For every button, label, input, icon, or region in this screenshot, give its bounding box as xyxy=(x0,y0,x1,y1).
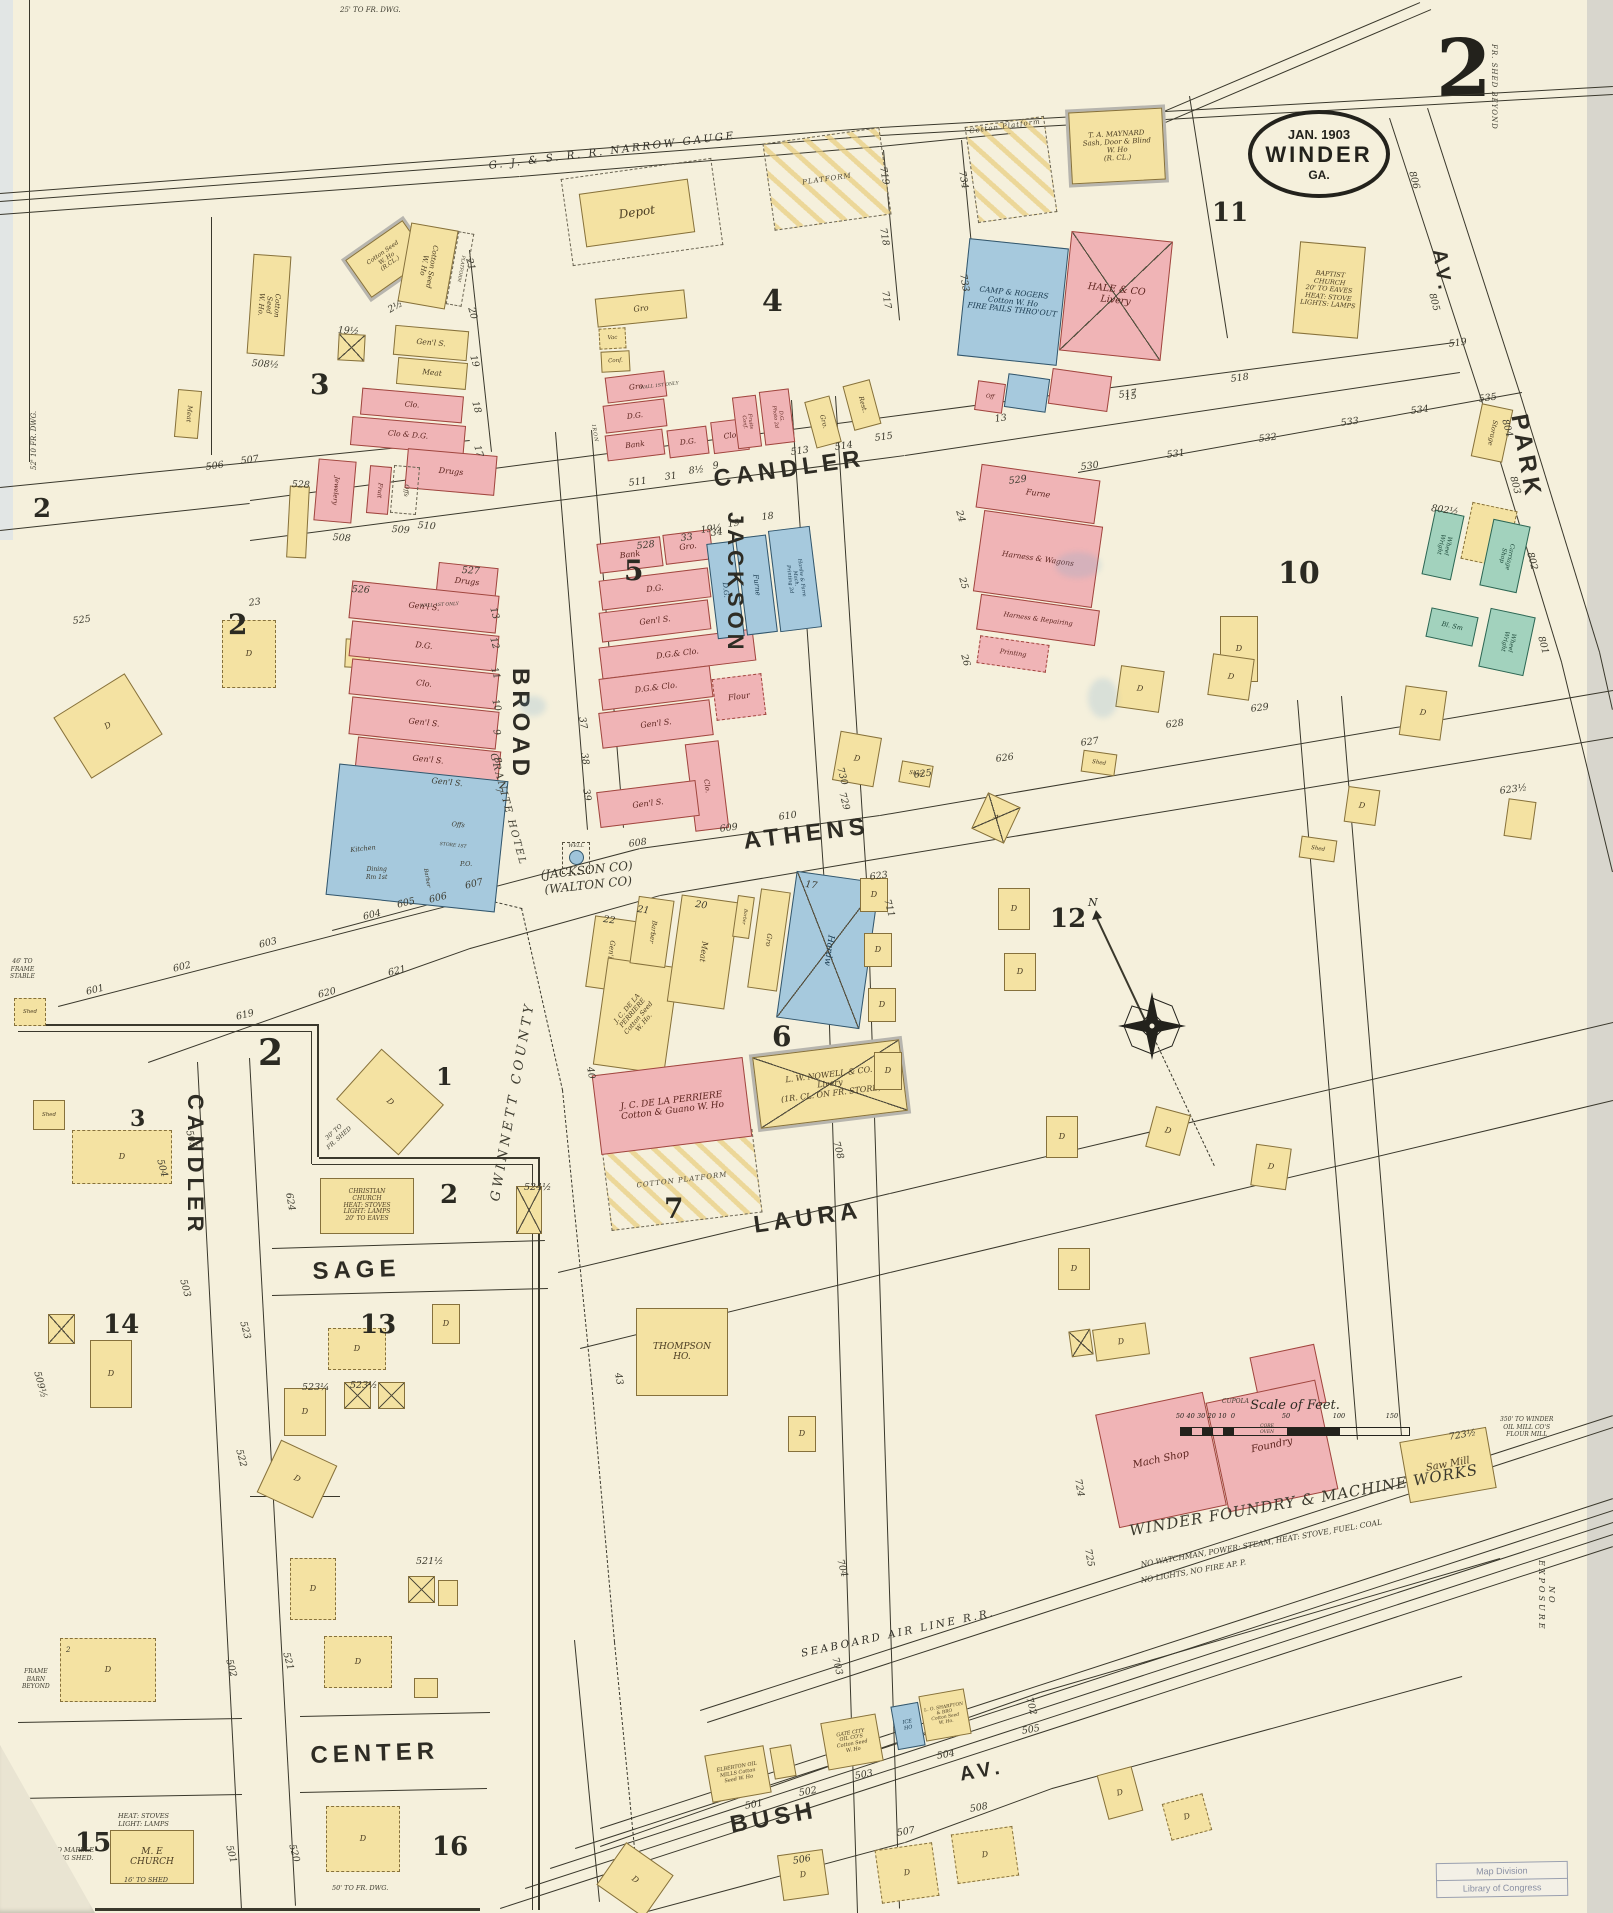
block-number-16: 16 xyxy=(432,1832,468,1862)
street-number: 40 xyxy=(584,1066,597,1080)
block-number-13: 13 xyxy=(360,1310,396,1340)
street-number: 623½ xyxy=(1499,782,1528,797)
building-label: D xyxy=(103,720,113,731)
street-number: 518 xyxy=(1230,371,1249,384)
map-note-frame: FRAME BARN BEYOND xyxy=(22,1668,50,1691)
building-label: GATE CITY OIL CO'S Cotton Seed W. Ho xyxy=(835,1728,870,1756)
scale-tick: 150 xyxy=(1386,1412,1398,1420)
building-label: D xyxy=(1183,1812,1192,1823)
building-label: Gro xyxy=(633,303,649,314)
building-label: L. O. SHARPTON & BRO Cotton Seed W. Ho. xyxy=(922,1701,969,1729)
building-label: Shed xyxy=(23,1009,37,1015)
street-number: 31 xyxy=(664,470,678,483)
building-d: D xyxy=(1092,1322,1150,1361)
well-marker: WELL xyxy=(562,842,590,874)
building-label: L. W. NOWELL & CO. Livery (1R. CL. ON FR… xyxy=(778,1064,882,1104)
building-label: D xyxy=(105,1665,111,1674)
building-label: D xyxy=(1071,1264,1077,1273)
street-number: 523 xyxy=(237,1320,252,1340)
building-label: Meat xyxy=(422,368,442,378)
building-label: Mach Shop xyxy=(1132,1448,1190,1471)
building-label: D.G. xyxy=(626,411,643,422)
street-number: 8½ xyxy=(688,464,705,477)
building-label: D xyxy=(360,1834,366,1843)
building-d: D xyxy=(1344,786,1381,826)
building-wheel: Wheel Wright xyxy=(1421,510,1464,581)
building-label: Gen'l S. xyxy=(640,718,672,731)
map-line xyxy=(317,1024,319,1157)
building-unlabeled xyxy=(438,1580,458,1606)
building-fruits: Fruits Conf. xyxy=(732,395,762,450)
platform-cotton-platform: Cotton Platform xyxy=(965,116,1058,223)
street-number: 503 xyxy=(854,1768,874,1782)
building-conf: Conf. xyxy=(600,350,630,372)
building-label: Offs xyxy=(401,484,409,497)
building-unlabeled xyxy=(769,1744,796,1779)
scale-of-feet: Scale of Feet. 5040302010050100150 xyxy=(1180,1398,1410,1436)
building-label: Depot xyxy=(618,204,656,223)
building-label: D xyxy=(1136,684,1144,694)
street-number: 619 xyxy=(235,1008,255,1023)
building-label: Clo xyxy=(723,431,737,441)
map-note-46-to: 46' TO FRAME STABLE xyxy=(10,958,35,981)
street-number: 725 xyxy=(1082,1548,1096,1568)
street-number: 13 xyxy=(487,606,501,621)
building-label: Gen'l S. xyxy=(632,798,664,811)
building-label: D xyxy=(1236,644,1242,653)
building-label: ELBERTON OIL MILLS Cotton Seed W. Ho xyxy=(716,1762,759,1786)
building-label: D.G. Photo 2d xyxy=(770,405,784,429)
stamp-line-2: Library of Congress xyxy=(1437,1878,1567,1897)
scale-segment xyxy=(1192,1428,1203,1435)
street-number: 15 xyxy=(1124,390,1138,403)
street-number: 718 xyxy=(877,227,891,247)
building-label: J. C. DE LA PERRIERE Cotton & Guano W. H… xyxy=(619,1089,724,1122)
map-line xyxy=(58,905,450,1007)
building-unlabeled xyxy=(48,1314,75,1344)
map-note-no-exposure: NO EXPOSURE xyxy=(1536,1560,1556,1632)
building-label: D.G.& Clo. xyxy=(656,647,700,661)
street-number: 724 xyxy=(1072,1478,1086,1498)
street-label-center: CENTER xyxy=(310,1738,440,1770)
map-line xyxy=(0,135,880,202)
building-label: Gro xyxy=(764,933,774,947)
scale-bar xyxy=(1180,1427,1410,1436)
building-gen-l-s: Gen'l S. xyxy=(393,325,469,361)
building-vac: Vac xyxy=(598,327,626,349)
compass-rose: N xyxy=(1066,888,1236,1192)
street-number: 604 xyxy=(362,908,382,923)
building-label: D xyxy=(1059,1132,1065,1141)
building-label: D xyxy=(310,1584,316,1593)
building-label: D xyxy=(853,754,861,764)
building-label: Harness & Repairing xyxy=(1003,611,1073,628)
scan-edge xyxy=(1587,0,1613,1913)
street-number: 24 xyxy=(953,509,967,524)
building-d: D xyxy=(284,1388,326,1436)
library-stamp: Map Division Library of Congress xyxy=(1436,1861,1569,1898)
street-number: 522 xyxy=(233,1448,248,1468)
building-label: Meat xyxy=(697,941,709,963)
building-label: Gen'l S. xyxy=(412,754,444,766)
street-number: 703 xyxy=(829,1656,844,1676)
block-number-6: 6 xyxy=(772,1020,791,1053)
map-note-25-to-fr-dwg: 25' TO FR. DWG. xyxy=(340,6,401,15)
map-line xyxy=(555,432,588,830)
block-number-4: 4 xyxy=(762,284,783,319)
street-label-jackson: JACKSON xyxy=(722,512,748,655)
street-number: 511 xyxy=(628,475,647,488)
building-label: Fruits Conf. xyxy=(740,414,753,431)
street-number: 507 xyxy=(240,453,259,466)
street-number: 21 xyxy=(636,904,650,917)
building-label: Bl. Sm xyxy=(1441,621,1464,633)
building-d: D xyxy=(336,1049,444,1156)
building-label: D xyxy=(1267,1162,1275,1172)
building-label: D xyxy=(875,945,881,954)
street-number: 621 xyxy=(387,964,407,979)
building-label: D xyxy=(981,1850,989,1860)
street-label-athens: ATHENS xyxy=(742,813,871,856)
compass-star-icon: N xyxy=(1066,888,1236,1188)
building-d: D xyxy=(951,1826,1019,1884)
street-number: 9 xyxy=(490,728,502,737)
building-unlabeled xyxy=(1068,1329,1093,1358)
title-state: GA. xyxy=(1308,168,1329,182)
street-number: 37 xyxy=(576,716,589,730)
block-number-2: 2 xyxy=(258,1032,283,1074)
map-line xyxy=(538,1157,540,1910)
map-line xyxy=(0,127,880,194)
street-number: 603 xyxy=(258,936,278,951)
street-number: 711 xyxy=(881,898,896,918)
map-line xyxy=(525,1534,1613,1889)
building-d: D xyxy=(868,988,896,1022)
building-flour: Flour xyxy=(712,673,767,721)
building-unlabeled xyxy=(1503,798,1536,840)
building-label: D xyxy=(443,1319,449,1328)
street-label-av: AV. xyxy=(1427,248,1456,296)
building-gate-city: GATE CITY OIL CO'S Cotton Seed W. Ho xyxy=(820,1714,883,1771)
aging-smudge xyxy=(1055,552,1101,578)
street-number: 523¼ xyxy=(302,1382,329,1393)
platform-label: PLATFORM xyxy=(802,172,852,187)
building-label: D xyxy=(108,1369,114,1378)
street-number: 507 xyxy=(896,1825,916,1839)
building-label: THOMPSON HO. xyxy=(653,1342,711,1363)
map-note-30-to: 30' TO FR. SHED xyxy=(320,1119,353,1151)
compass-north-letter: N xyxy=(1087,896,1098,909)
map-note-heat-stoves: HEAT: STOVES LIGHT: LAMPS xyxy=(118,1812,169,1828)
street-number: 521½ xyxy=(416,1556,443,1567)
street-number: 531 xyxy=(1166,447,1185,460)
street-number: 503 xyxy=(177,1278,192,1298)
map-note-50-to-fr-dwg: 50' TO FR. DWG. xyxy=(332,1884,388,1892)
street-number: 13 xyxy=(994,412,1008,425)
map-line xyxy=(469,250,492,452)
map-line xyxy=(640,1842,905,1913)
building-meat: Meat xyxy=(396,357,468,390)
map-line xyxy=(591,1382,615,1642)
street-number: 528 xyxy=(291,479,310,491)
map-line xyxy=(580,1272,890,1349)
building-label: Printing xyxy=(999,648,1027,659)
scale-segment xyxy=(1213,1428,1224,1435)
street-number: 506 xyxy=(205,459,224,472)
scale-tick: 10 xyxy=(1218,1412,1226,1420)
street-number: 620 xyxy=(317,986,337,1001)
map-line xyxy=(562,1090,592,1382)
street-number: 509 xyxy=(391,524,410,536)
building-unlabeled xyxy=(516,1186,542,1234)
building-label: D.G. xyxy=(679,437,696,448)
building-label: Vac xyxy=(607,335,617,342)
street-number: 527 xyxy=(461,565,480,577)
building-j-c-de-la-perriere: J. C. DE LA PERRIERE Cotton Seed W. Ho. xyxy=(593,958,679,1075)
street-number: 535 xyxy=(1478,391,1497,404)
block-number-7: 7 xyxy=(664,1192,683,1225)
building-d: D xyxy=(432,1304,460,1344)
building-label: CAMP & ROGERS Cotton W. Ho FIRE PAILS TH… xyxy=(967,284,1059,319)
building-label: Clo. xyxy=(416,679,433,690)
street-number: 25 xyxy=(956,576,970,591)
street-number: 10 xyxy=(489,698,503,713)
building-christian: CHRISTIAN CHURCH HEAT: STOVES LIGHT: LAM… xyxy=(320,1178,414,1234)
street-number: 18 xyxy=(761,511,774,523)
street-label-av: AV. xyxy=(958,1756,1006,1786)
building-d: D xyxy=(72,1130,172,1184)
well-label: WELL xyxy=(568,843,583,849)
street-label-sage: SAGE xyxy=(312,1255,401,1286)
building-label: Gen'l S. xyxy=(639,615,671,628)
block-number-2: 2 xyxy=(440,1180,458,1210)
block-number-2: 2 xyxy=(228,608,247,641)
building-label: Gen'l S. xyxy=(416,337,446,348)
street-number: 19 xyxy=(727,518,740,530)
building-label: Furne xyxy=(1025,488,1050,500)
street-number: 717 xyxy=(879,290,893,310)
map-note-fr-shed-beyond: FR. SHED BEYOND xyxy=(1489,44,1498,130)
scale-segment xyxy=(1287,1428,1340,1435)
street-number: 802 xyxy=(1524,551,1539,571)
building-label: D.G.& Clo. xyxy=(634,681,678,695)
building-label: Drugs xyxy=(438,466,463,477)
building-label: Shed xyxy=(1311,845,1326,853)
building-unlabeled xyxy=(337,333,365,361)
building-label: Wheel Wright xyxy=(1434,533,1452,556)
title-oval: JAN. 1903 WINDER GA. xyxy=(1248,110,1390,198)
building-bank: Bank xyxy=(605,429,666,462)
building-label: Meat xyxy=(184,405,193,423)
street-number: 530 xyxy=(1080,459,1099,472)
street-label-laura: LAURA xyxy=(752,1197,864,1240)
street-number: 21 xyxy=(463,257,477,272)
map-line xyxy=(890,1100,1613,1273)
building-d: D xyxy=(257,1440,338,1519)
scale-tick: 0 xyxy=(1231,1412,1235,1420)
map-line xyxy=(500,1546,1613,1909)
building-gro: Gro xyxy=(595,289,688,327)
scan-edge-left xyxy=(0,0,13,540)
building-label: D xyxy=(799,1870,807,1880)
building-label: D xyxy=(1227,672,1235,682)
building-label: D xyxy=(302,1407,308,1416)
building-label: Fruit xyxy=(375,482,383,498)
building-label: Clo. xyxy=(702,779,712,794)
building-thompson: THOMPSON HO. xyxy=(636,1308,728,1396)
building-label: Carriage Shop xyxy=(1495,541,1514,570)
street-number: 38 xyxy=(578,752,591,766)
scale-tick: 100 xyxy=(1333,1412,1345,1420)
block-number-5: 5 xyxy=(624,554,643,587)
building-shed: Shed xyxy=(1299,836,1338,863)
map-line xyxy=(18,1024,319,1026)
street-number: 528 xyxy=(636,539,655,552)
map-note-2: 2 xyxy=(66,1646,70,1655)
street-number: 806 xyxy=(1406,170,1421,190)
street-number: 515 xyxy=(874,430,893,443)
building-label: D xyxy=(630,1874,641,1885)
block-number-11: 11 xyxy=(1212,198,1248,228)
building-label: Shed xyxy=(42,1112,56,1118)
building-label: D.G. xyxy=(646,583,664,594)
map-line xyxy=(300,1788,487,1793)
map-line xyxy=(272,1240,545,1249)
map-line xyxy=(272,1288,548,1296)
map-note-dining: Dining Rm 1st xyxy=(366,866,387,881)
building-hale-co: HALE & CO Livery xyxy=(1059,231,1173,361)
building-unlabeled xyxy=(326,763,509,912)
building-label: D xyxy=(879,1000,885,1009)
building-barber: Barber xyxy=(629,896,674,968)
building-shed: Shed xyxy=(1081,750,1118,777)
building-label: Off xyxy=(985,393,994,400)
aging-smudge xyxy=(520,696,546,716)
scale-tick: 20 xyxy=(1208,1412,1216,1420)
building-rest: Rest. xyxy=(843,379,882,431)
building-label: M. E CHURCH xyxy=(130,1847,174,1868)
building-d: D xyxy=(864,933,892,967)
building-label: Foundry xyxy=(1250,1436,1294,1456)
building-d: D xyxy=(998,888,1030,930)
building-d: D xyxy=(1004,953,1036,991)
street-number: 509½ xyxy=(31,1370,49,1399)
street-number: 734 xyxy=(956,170,970,190)
building-label: J. C. DE LA PERRIERE Cotton Seed W. Ho. xyxy=(602,980,670,1053)
building-camp-rogers: CAMP & ROGERS Cotton W. Ho FIRE PAILS TH… xyxy=(957,238,1069,366)
platform-platform: PLATFORM xyxy=(762,127,891,231)
building-label: Barber xyxy=(647,920,658,944)
building-label: D xyxy=(246,649,252,658)
building-label: D.G. xyxy=(415,641,433,652)
map-line xyxy=(532,1164,533,1910)
building-d: D xyxy=(1058,1248,1090,1290)
street-number: 11 xyxy=(488,666,502,681)
building-d: D xyxy=(324,1636,392,1688)
building-label: CHRISTIAN CHURCH HEAT: STOVES LIGHT: LAM… xyxy=(343,1189,390,1223)
building-label: Conf. xyxy=(608,358,623,365)
street-number: 501 xyxy=(223,1844,238,1864)
building-label: Furne xyxy=(751,574,762,596)
building-d: D xyxy=(1097,1766,1144,1820)
street-number: 719 xyxy=(877,166,891,186)
building-label: D xyxy=(354,1344,360,1353)
building-d: D xyxy=(53,673,162,779)
building-d: D xyxy=(1399,685,1448,740)
building-label: D xyxy=(1116,1788,1125,1799)
street-number: 22 xyxy=(602,914,616,927)
block-number-2: 2 xyxy=(33,494,51,524)
street-number: 33 xyxy=(680,532,693,544)
map-line xyxy=(300,1712,490,1717)
building-unlabeled xyxy=(378,1382,405,1409)
map-line xyxy=(880,86,1613,128)
building-label: Jewelery xyxy=(330,476,340,505)
building-d: D xyxy=(1162,1793,1212,1841)
sanborn-map-sheet: 2 JAN. 1903 WINDER GA. PLATFORMCotton Pl… xyxy=(0,0,1613,1913)
building-cotton-seed: Cotton Seed W. Ho. xyxy=(247,254,292,356)
building-label: Storage xyxy=(1486,420,1499,447)
scale-segment xyxy=(1202,1428,1213,1435)
block-number-3: 3 xyxy=(130,1106,145,1132)
platform-label: COTTON PLATFORM xyxy=(636,1170,728,1189)
building-offs: Offs xyxy=(390,465,420,515)
building-baptist: BAPTIST CHURCH 20' TO EAVES HEAT: STOVE … xyxy=(1292,241,1366,338)
street-number: 508½ xyxy=(251,358,279,371)
block-number-10: 10 xyxy=(1278,556,1320,591)
building-label: Hardw & Farm Mach. Printing 2d xyxy=(784,559,806,599)
building-label: D xyxy=(799,1429,805,1438)
map-note-offs: Offs xyxy=(451,820,465,829)
railroad-label-seaboard-air-line-r-r: SEABOARD AIR LINE R.R. xyxy=(800,1607,996,1660)
block-number-1: 1 xyxy=(436,1062,453,1091)
building-label: Drugs xyxy=(454,576,479,588)
building-label: Bank xyxy=(625,440,645,451)
building-label: D xyxy=(903,1868,911,1878)
scale-tick: 40 xyxy=(1186,1412,1194,1420)
scale-segment xyxy=(1181,1428,1192,1435)
building-unlabeled xyxy=(414,1678,438,1698)
building-label: Shed xyxy=(1092,759,1107,767)
building-label: D xyxy=(871,890,877,899)
street-number: 525 xyxy=(72,613,91,626)
building-label: D xyxy=(1358,801,1366,811)
scale-tick: 50 xyxy=(1176,1412,1184,1420)
title-date: JAN. 1903 xyxy=(1288,127,1350,142)
building-d-g: D.G. xyxy=(666,426,709,459)
scale-title: Scale of Feet. xyxy=(1180,1398,1410,1413)
building-d: D xyxy=(1250,1144,1291,1191)
building-label: D xyxy=(385,1096,396,1107)
street-number: 17 xyxy=(804,879,818,892)
building-d: D xyxy=(60,1638,156,1702)
building-label: Cotton Seed W. Ho. xyxy=(256,286,283,324)
street-number: 23 xyxy=(248,596,262,609)
map-line xyxy=(574,1640,600,1902)
building-off: Off xyxy=(974,380,1006,414)
map-line xyxy=(311,1031,312,1164)
scale-tick: 30 xyxy=(1197,1412,1205,1420)
aging-smudge xyxy=(1088,678,1118,718)
street-number: 505 xyxy=(1021,1723,1041,1737)
street-number: 520 xyxy=(286,1843,301,1863)
map-line xyxy=(211,217,212,455)
scale-segment xyxy=(1340,1428,1393,1435)
building-fruit: Fruit xyxy=(366,465,392,515)
building-d: D xyxy=(290,1558,336,1620)
street-number: 801 xyxy=(1535,635,1550,655)
map-line xyxy=(95,1908,480,1911)
